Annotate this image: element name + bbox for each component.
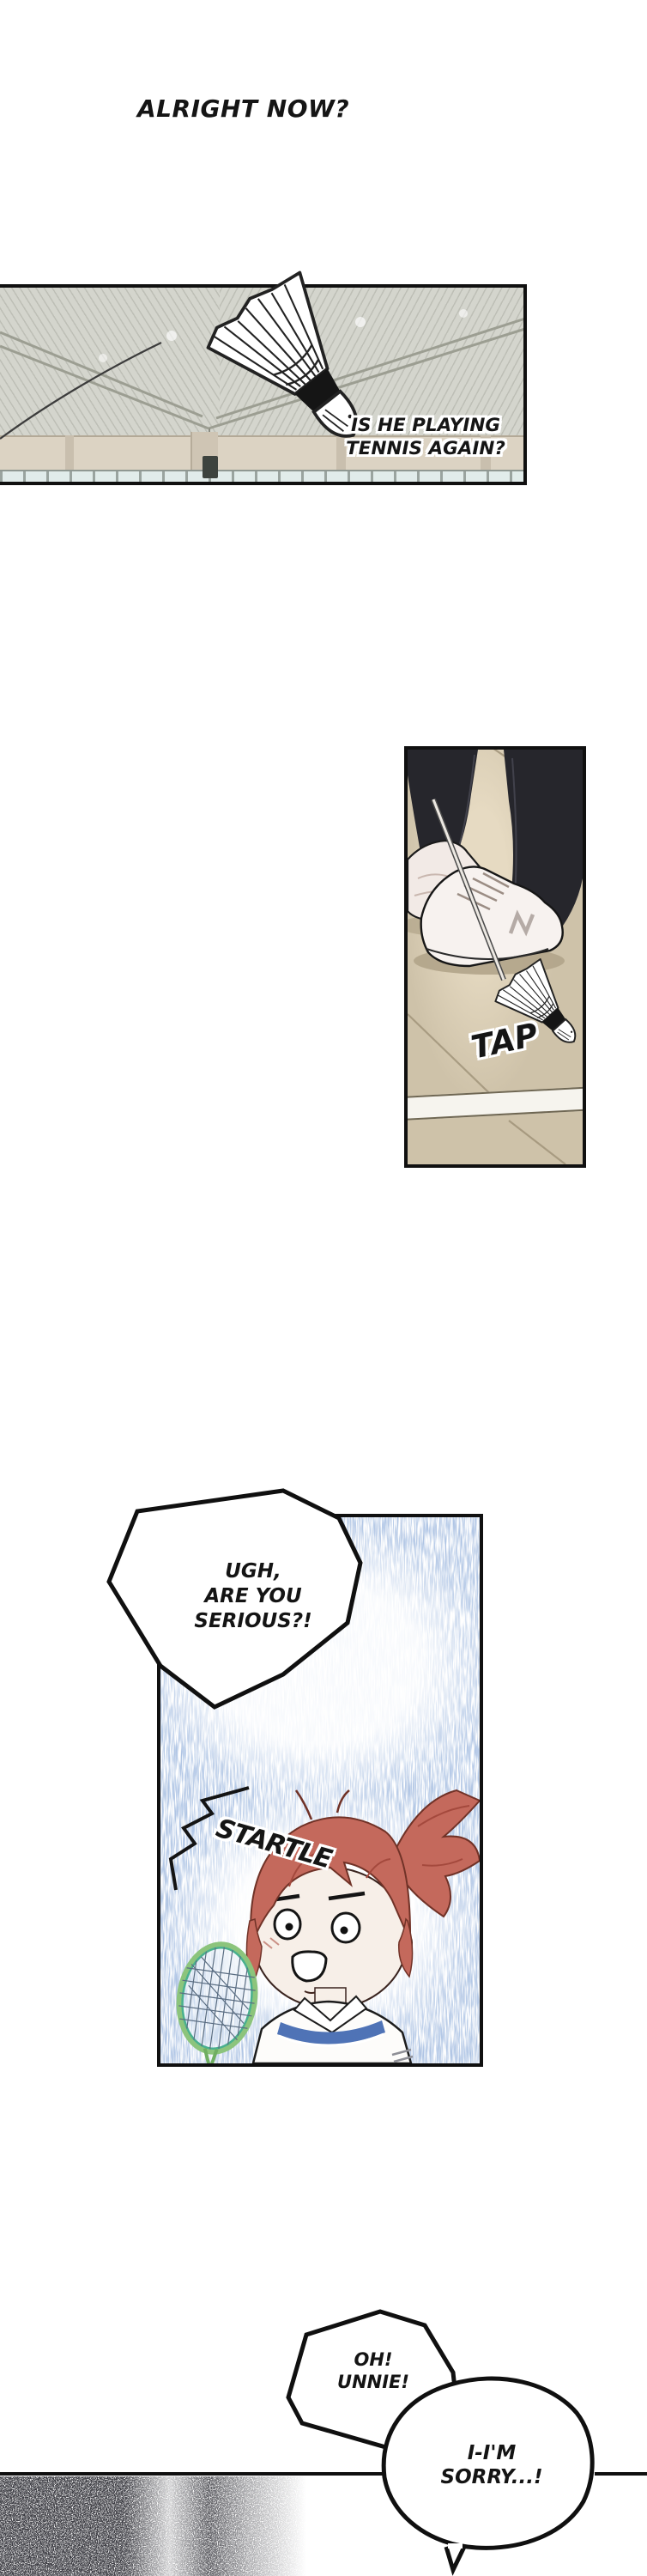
bubble-ugh-line2: ARE YOU	[146, 1584, 360, 1609]
speech-tennis-line2: TENNIS AGAIN?	[340, 437, 511, 460]
mouth	[293, 1952, 326, 1981]
bubble-sorry-line2: SORRY...!	[419, 2465, 565, 2489]
panel-2: TAP	[404, 746, 586, 1168]
bubble-sorry-line1: I-I'M	[419, 2441, 565, 2465]
speech-bubble-ugh: UGH, ARE YOU SERIOUS?!	[99, 1484, 373, 1733]
bubble-oh-line2: UNNIE!	[313, 2371, 433, 2393]
narration-text: ALRIGHT NOW?	[137, 94, 349, 123]
webtoon-page: ALRIGHT NOW?	[0, 0, 647, 2576]
bubble-sorry-tail	[446, 2547, 464, 2570]
bubble-ugh-line3: SERIOUS?!	[146, 1609, 360, 1634]
bubble-sorry-text: I-I'M SORRY...!	[419, 2441, 565, 2489]
speech-tennis-line1: IS HE PLAYING	[340, 414, 511, 437]
shuttlecock-icon	[167, 275, 365, 438]
bubble-ugh-text: UGH, ARE YOU SERIOUS?!	[146, 1559, 360, 1634]
speech-tennis: IS HE PLAYING TENNIS AGAIN?	[340, 414, 511, 460]
bubble-shapes	[266, 2297, 647, 2576]
bubble-oh-line1: OH!	[313, 2348, 433, 2371]
bubble-ugh-line1: UGH,	[146, 1559, 360, 1584]
bubble-oh-text: OH! UNNIE!	[313, 2348, 433, 2393]
bottom-bubbles: OH! UNNIE! I-I'M SORRY...!	[266, 2297, 647, 2576]
